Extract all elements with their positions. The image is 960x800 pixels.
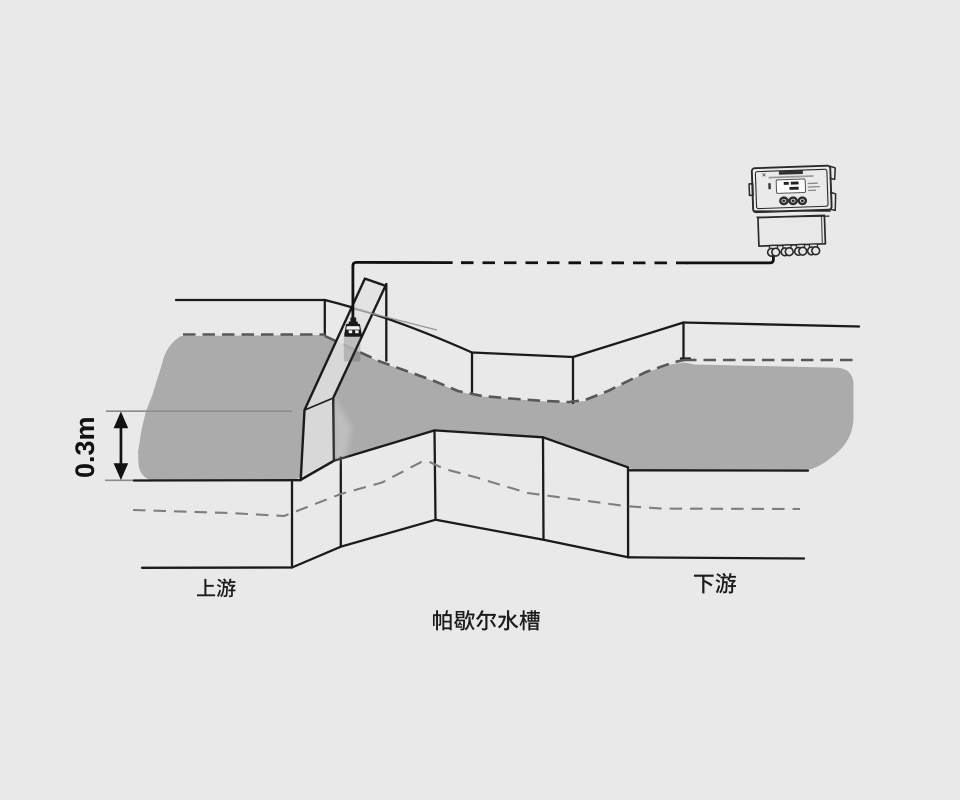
svg-text:0.3m: 0.3m (70, 416, 100, 478)
